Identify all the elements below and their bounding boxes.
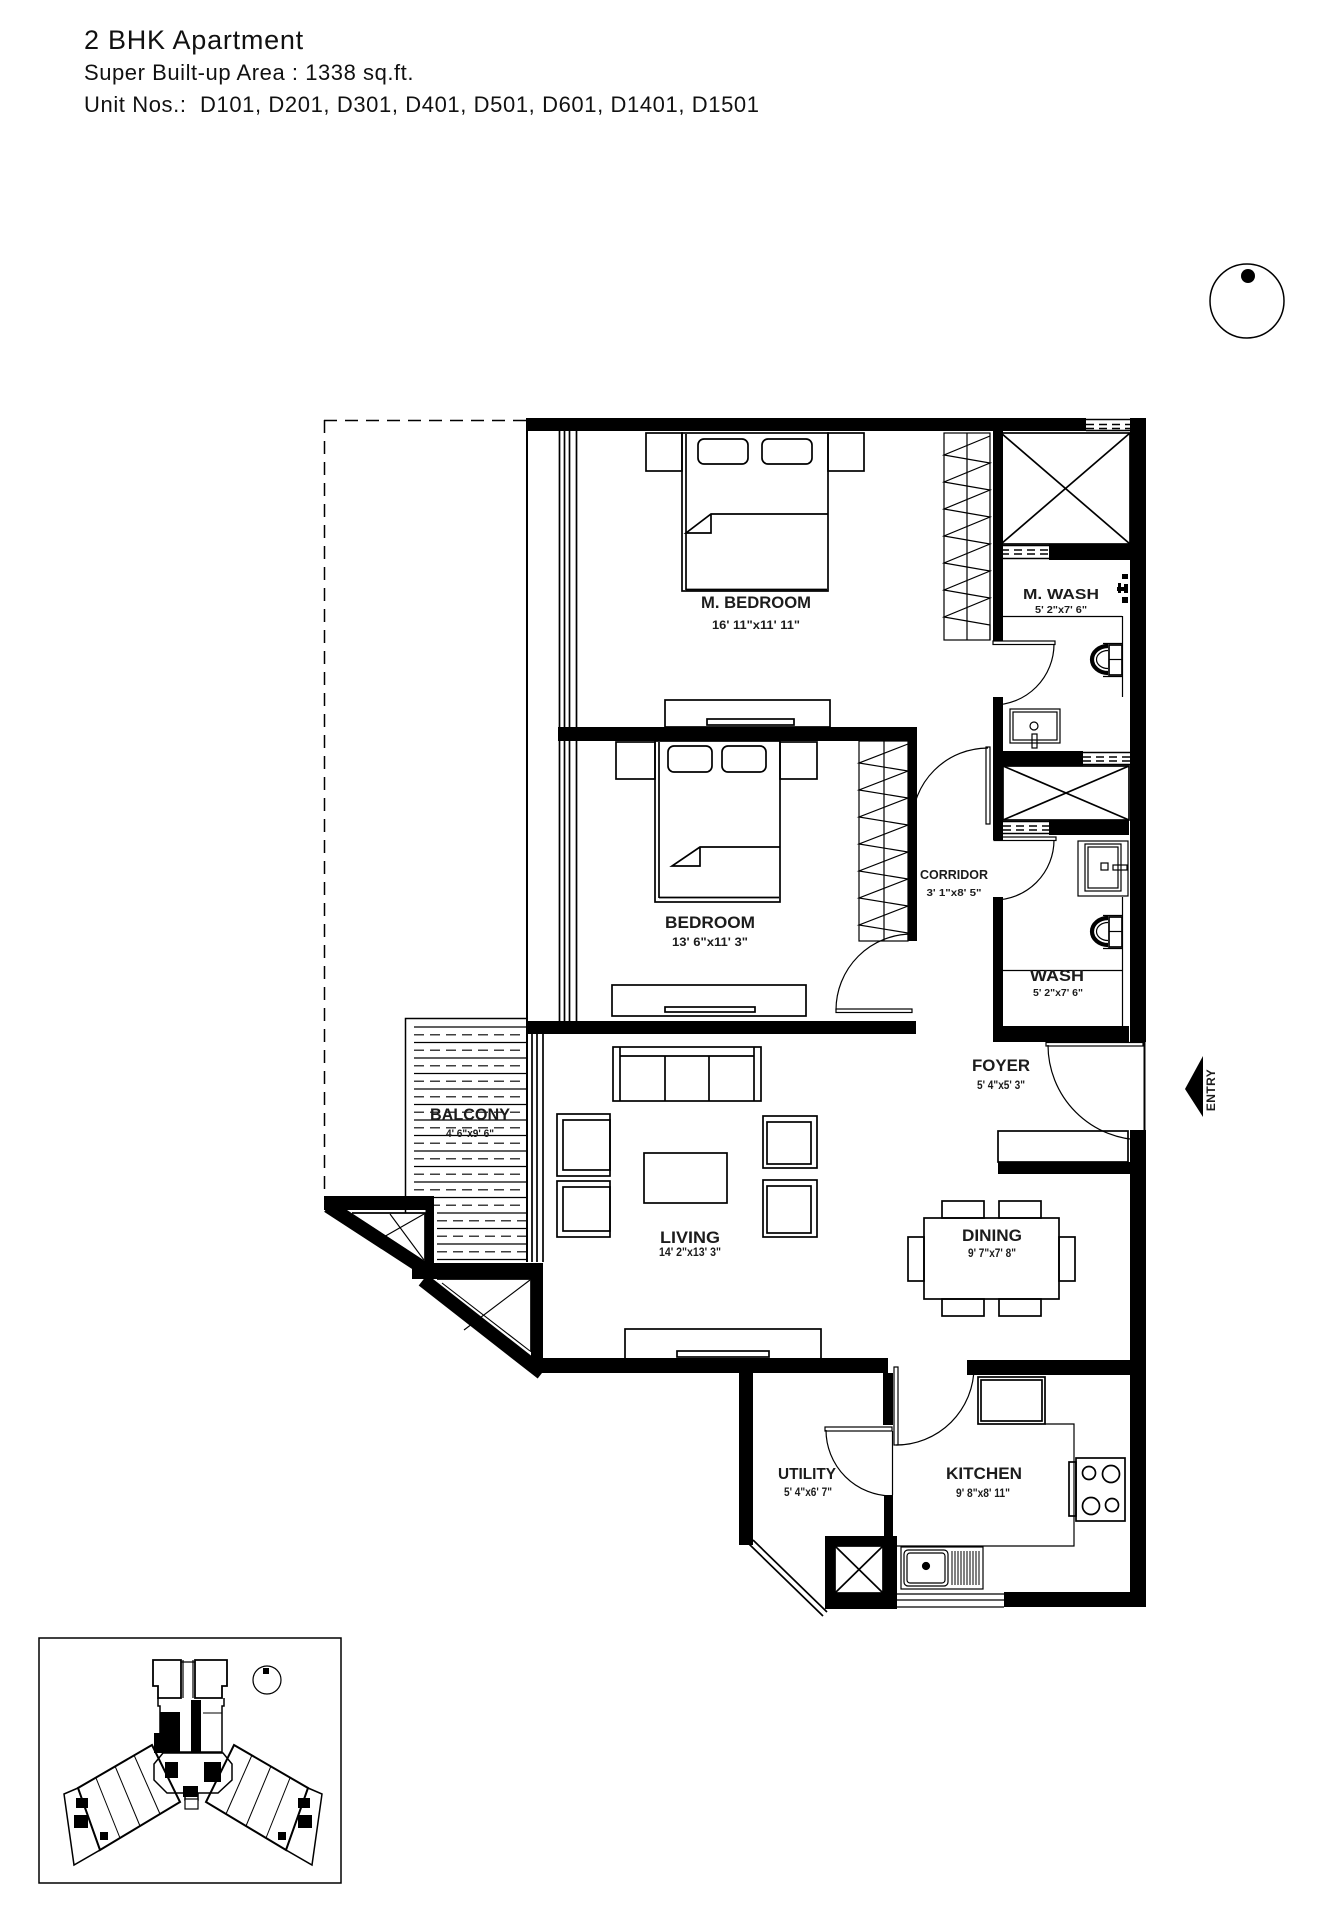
svg-text:16' 11"x11' 11": 16' 11"x11' 11" xyxy=(712,618,800,632)
svg-text:DINING: DINING xyxy=(962,1226,1022,1245)
svg-text:13' 6"x11' 3": 13' 6"x11' 3" xyxy=(672,935,748,949)
svg-text:BALCONY: BALCONY xyxy=(430,1105,511,1124)
svg-text:M. BEDROOM: M. BEDROOM xyxy=(701,593,811,612)
svg-text:WASH: WASH xyxy=(1030,968,1084,985)
svg-text:CORRIDOR: CORRIDOR xyxy=(920,867,989,882)
svg-text:4' 6"x9' 6": 4' 6"x9' 6" xyxy=(446,1128,494,1140)
svg-text:9' 7"x7' 8": 9' 7"x7' 8" xyxy=(968,1246,1016,1260)
svg-text:5' 2"x7' 6": 5' 2"x7' 6" xyxy=(1033,987,1083,999)
svg-text:ENTRY: ENTRY xyxy=(1204,1069,1218,1111)
svg-text:KITCHEN: KITCHEN xyxy=(946,1464,1022,1483)
svg-text:14' 2"x13' 3": 14' 2"x13' 3" xyxy=(659,1245,721,1259)
svg-text:Super Built-up Area : 1338 sq.: Super Built-up Area : 1338 sq.ft. xyxy=(84,60,414,85)
svg-text:9' 8"x8' 11": 9' 8"x8' 11" xyxy=(956,1486,1010,1500)
svg-text:M. WASH: M. WASH xyxy=(1023,586,1099,603)
svg-text:UTILITY: UTILITY xyxy=(778,1466,836,1483)
svg-text:5' 4"x5' 3": 5' 4"x5' 3" xyxy=(977,1078,1025,1092)
svg-text:Unit Nos.: D101, D201, D301,: Unit Nos.: D101, D201, D301, D401, D501,… xyxy=(84,92,760,117)
svg-text:3' 1"x8' 5": 3' 1"x8' 5" xyxy=(927,887,982,899)
svg-text:5' 4"x6' 7": 5' 4"x6' 7" xyxy=(784,1485,832,1499)
svg-text:BEDROOM: BEDROOM xyxy=(665,913,755,932)
svg-text:FOYER: FOYER xyxy=(972,1056,1030,1075)
svg-text:2 BHK Apartment: 2 BHK Apartment xyxy=(84,25,304,55)
svg-text:5' 2"x7' 6": 5' 2"x7' 6" xyxy=(1035,604,1087,616)
